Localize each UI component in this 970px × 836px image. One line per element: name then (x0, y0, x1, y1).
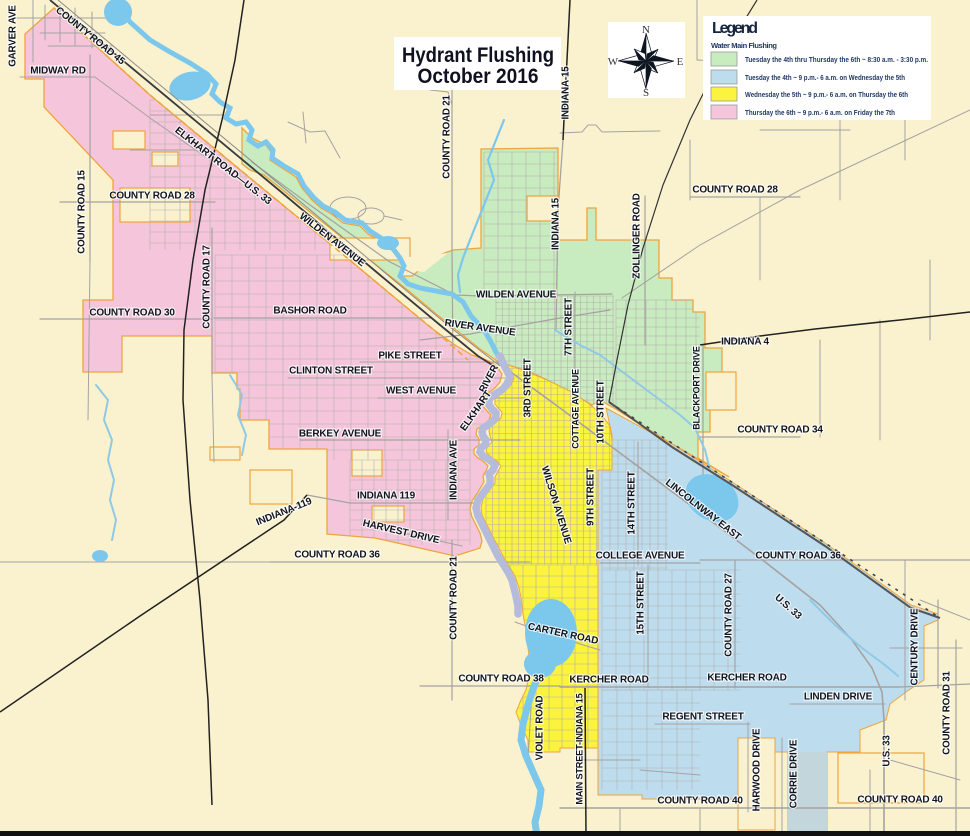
svg-text:October 2016: October 2016 (418, 65, 539, 88)
svg-text:BERKEY AVENUE: BERKEY AVENUE (299, 429, 382, 440)
svg-text:Water Main Flushing: Water Main Flushing (711, 41, 777, 50)
svg-text:Tuesday the 4th ~ 9 p.m.- 6 a.: Tuesday the 4th ~ 9 p.m.- 6 a.m. on Wedn… (745, 73, 905, 82)
svg-text:KERCHER ROAD: KERCHER ROAD (569, 675, 648, 686)
svg-text:INDIANA AVE: INDIANA AVE (449, 439, 460, 500)
svg-text:ZOLLINGER ROAD: ZOLLINGER ROAD (632, 193, 643, 278)
svg-text:CORRIE DRIVE: CORRIE DRIVE (789, 739, 800, 808)
svg-text:COUNTY ROAD 40: COUNTY ROAD 40 (857, 795, 943, 806)
svg-text:Thursday the 6th ~ 9 p.m.- 6: Thursday the 6th ~ 9 p.m.- 6 a.m. on Fri… (745, 108, 895, 117)
svg-text:E: E (677, 56, 684, 68)
svg-text:COUNTY ROAD 28: COUNTY ROAD 28 (692, 185, 778, 196)
svg-text:COTTAGE AVENUE: COTTAGE AVENUE (570, 369, 580, 449)
svg-text:COUNTY ROAD 15: COUNTY ROAD 15 (77, 169, 88, 253)
svg-text:PIKE STREET: PIKE STREET (378, 351, 441, 362)
svg-text:S: S (643, 87, 649, 99)
svg-text:7TH STREET: 7TH STREET (564, 298, 575, 356)
svg-text:BASHOR ROAD: BASHOR ROAD (273, 306, 346, 317)
svg-text:BLACKPORT DRIVE: BLACKPORT DRIVE (691, 346, 701, 430)
svg-text:LINDEN DRIVE: LINDEN DRIVE (804, 692, 873, 703)
svg-text:9TH STREET: 9TH STREET (586, 468, 597, 526)
svg-text:14TH STREET: 14TH STREET (627, 471, 638, 534)
svg-text:WILDEN AVENUE: WILDEN AVENUE (476, 290, 557, 301)
svg-text:COUNTY ROAD 38: COUNTY ROAD 38 (458, 674, 544, 685)
svg-text:COUNTY ROAD 36: COUNTY ROAD 36 (294, 550, 380, 561)
svg-text:15TH STREET: 15TH STREET (636, 571, 647, 634)
svg-text:10TH STREET: 10TH STREET (596, 380, 607, 443)
svg-text:COUNTY ROAD 21: COUNTY ROAD 21 (442, 94, 453, 178)
svg-text:MAIN STREET-INDIANA 15: MAIN STREET-INDIANA 15 (574, 693, 584, 804)
svg-text:COUNTY ROAD 21: COUNTY ROAD 21 (449, 555, 460, 639)
svg-text:HARWOOD DRIVE: HARWOOD DRIVE (752, 728, 763, 811)
svg-text:COUNTY ROAD 28: COUNTY ROAD 28 (109, 191, 195, 202)
svg-text:COUNTY ROAD 17: COUNTY ROAD 17 (202, 244, 213, 328)
svg-text:WEST AVENUE: WEST AVENUE (386, 386, 457, 397)
svg-text:Wednesday the 5th ~ 9 p.m.- 6: Wednesday the 5th ~ 9 p.m.- 6 a.m. on Th… (745, 90, 908, 99)
svg-text:GARVER AVE: GARVER AVE (8, 5, 19, 67)
svg-text:COUNTY ROAD 36: COUNTY ROAD 36 (755, 551, 841, 562)
svg-text:INDIANA 4: INDIANA 4 (721, 337, 769, 348)
svg-text:W: W (608, 56, 619, 68)
svg-text:COUNTY ROAD 27: COUNTY ROAD 27 (724, 572, 735, 656)
svg-text:MIDWAY RD: MIDWAY RD (30, 66, 85, 77)
svg-text:Tuesday the 4th thru Thursday: Tuesday the 4th thru Thursday the 6th ~ … (745, 55, 928, 64)
svg-text:INDIANA-15: INDIANA-15 (561, 66, 572, 120)
svg-text:COUNTY ROAD 30: COUNTY ROAD 30 (89, 308, 175, 319)
svg-text:Legend: Legend (712, 20, 758, 37)
svg-text:U.S. 33: U.S. 33 (882, 735, 893, 767)
svg-text:INDIANA 119: INDIANA 119 (357, 491, 416, 502)
svg-text:N: N (642, 24, 650, 36)
svg-text:COUNTY ROAD 31: COUNTY ROAD 31 (942, 670, 953, 754)
svg-text:COLLEGE AVENUE: COLLEGE AVENUE (596, 551, 685, 562)
svg-text:REGENT STREET: REGENT STREET (662, 712, 743, 723)
svg-text:COUNTY ROAD 34: COUNTY ROAD 34 (737, 425, 823, 436)
svg-text:CENTURY DRIVE: CENTURY DRIVE (910, 608, 921, 686)
svg-text:COUNTY ROAD 40: COUNTY ROAD 40 (657, 796, 743, 807)
svg-text:CLINTON STREET: CLINTON STREET (289, 366, 373, 377)
svg-text:Hydrant Flushing: Hydrant Flushing (402, 44, 554, 67)
svg-text:VIOLET ROAD: VIOLET ROAD (535, 696, 546, 761)
svg-text:KERCHER ROAD: KERCHER ROAD (707, 673, 786, 684)
svg-text:3RD STREET: 3RD STREET (523, 358, 534, 417)
svg-text:INDIANA 15: INDIANA 15 (551, 197, 562, 250)
